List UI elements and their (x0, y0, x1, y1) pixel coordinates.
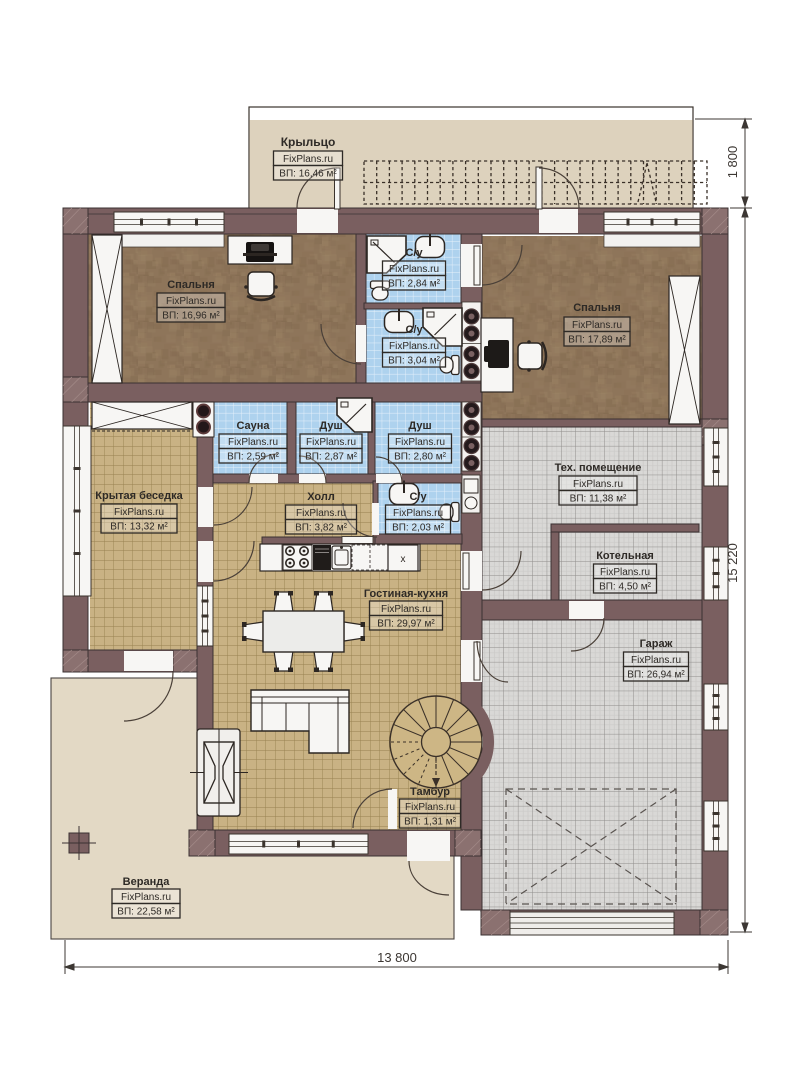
svg-text:13 800: 13 800 (377, 950, 417, 965)
svg-text:15 220: 15 220 (725, 543, 740, 583)
svg-text:Сауна: Сауна (236, 420, 270, 432)
svg-text:ВП: 2,84 м²: ВП: 2,84 м² (388, 279, 441, 290)
svg-text:FixPlans.ru: FixPlans.ru (631, 655, 681, 666)
svg-text:ВП: 16,46 м²: ВП: 16,46 м² (279, 169, 337, 180)
svg-text:С/у: С/у (409, 491, 427, 503)
svg-text:Спальня: Спальня (167, 279, 215, 291)
svg-text:ВП: 26,94 м²: ВП: 26,94 м² (627, 670, 685, 681)
svg-text:FixPlans.ru: FixPlans.ru (381, 604, 431, 615)
svg-text:FixPlans.ru: FixPlans.ru (166, 296, 216, 307)
svg-text:ВП: 2,80 м²: ВП: 2,80 м² (394, 452, 447, 463)
svg-text:ВП: 3,82 м²: ВП: 3,82 м² (295, 523, 348, 534)
svg-text:FixPlans.ru: FixPlans.ru (393, 508, 443, 519)
svg-text:ВП: 2,59 м²: ВП: 2,59 м² (227, 452, 280, 463)
svg-text:ВП: 17,89 м²: ВП: 17,89 м² (568, 335, 626, 346)
svg-text:ВП: 16,96 м²: ВП: 16,96 м² (162, 311, 220, 322)
svg-text:FixPlans.ru: FixPlans.ru (395, 437, 445, 448)
svg-text:ВП: 2,03 м²: ВП: 2,03 м² (392, 523, 445, 534)
svg-text:Гараж: Гараж (640, 638, 673, 650)
svg-text:FixPlans.ru: FixPlans.ru (283, 154, 333, 165)
svg-text:ВП: 11,38 м²: ВП: 11,38 м² (570, 494, 627, 505)
svg-text:FixPlans.ru: FixPlans.ru (114, 507, 164, 518)
svg-text:FixPlans.ru: FixPlans.ru (600, 567, 650, 578)
svg-text:FixPlans.ru: FixPlans.ru (121, 892, 171, 903)
svg-text:FixPlans.ru: FixPlans.ru (306, 437, 356, 448)
svg-text:Крытая беседка: Крытая беседка (95, 490, 183, 502)
svg-text:ВП: 3,04 м²: ВП: 3,04 м² (388, 356, 441, 367)
svg-text:ВП: 29,97 м²: ВП: 29,97 м² (377, 619, 435, 630)
svg-text:Тех. помещение: Тех. помещение (555, 462, 642, 474)
svg-text:Спальня: Спальня (573, 302, 621, 314)
svg-text:С/у: С/у (405, 247, 423, 259)
svg-text:FixPlans.ru: FixPlans.ru (405, 802, 455, 813)
svg-text:ВП: 1,31 м²: ВП: 1,31 м² (404, 817, 457, 828)
svg-text:ВП: 22,58 м²: ВП: 22,58 м² (117, 907, 175, 918)
svg-text:FixPlans.ru: FixPlans.ru (296, 508, 346, 519)
svg-text:ВП: 4,50 м²: ВП: 4,50 м² (599, 582, 652, 593)
svg-text:FixPlans.ru: FixPlans.ru (573, 479, 623, 490)
svg-text:x: x (401, 554, 406, 565)
svg-text:ВП: 2,87 м²: ВП: 2,87 м² (305, 452, 358, 463)
svg-text:Веранда: Веранда (123, 876, 171, 888)
svg-text:Котельная: Котельная (596, 550, 654, 562)
svg-text:FixPlans.ru: FixPlans.ru (572, 320, 622, 331)
svg-text:FixPlans.ru: FixPlans.ru (228, 437, 278, 448)
svg-text:1 800: 1 800 (725, 146, 740, 179)
svg-text:Душ: Душ (319, 420, 342, 432)
svg-text:Душ: Душ (408, 420, 431, 432)
svg-text:ВП: 13,32 м²: ВП: 13,32 м² (110, 522, 168, 533)
svg-text:Холл: Холл (307, 491, 335, 503)
svg-text:Крыльцо: Крыльцо (281, 135, 336, 149)
svg-text:FixPlans.ru: FixPlans.ru (389, 264, 439, 275)
svg-text:Тамбур: Тамбур (410, 786, 450, 798)
svg-text:С/у: С/у (405, 324, 423, 336)
svg-text:Гостиная-кухня: Гостиная-кухня (364, 588, 448, 600)
svg-text:FixPlans.ru: FixPlans.ru (389, 341, 439, 352)
